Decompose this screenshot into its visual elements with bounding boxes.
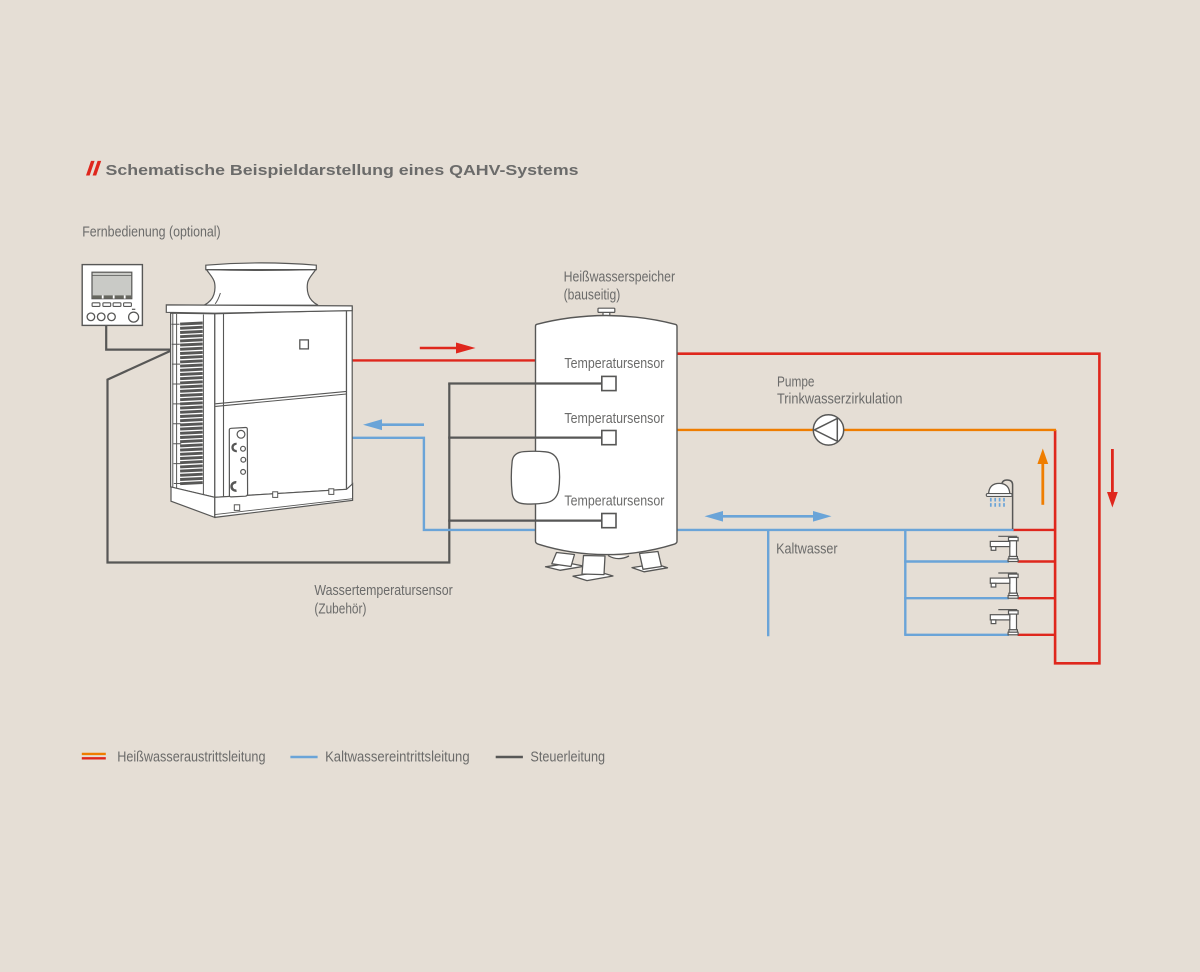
svg-text:Heißwasseraustrittsleitung: Heißwasseraustrittsleitung [117,749,265,766]
svg-text:Pumpe: Pumpe [777,373,815,390]
svg-text:(Zubehör): (Zubehör) [314,601,366,618]
svg-text:Trinkwasserzirkulation: Trinkwasserzirkulation [777,391,903,408]
svg-text:Temperatursensor: Temperatursensor [564,492,664,509]
svg-text:Temperatursensor: Temperatursensor [564,410,664,427]
svg-text:(bauseitig): (bauseitig) [564,287,621,304]
svg-text:Fernbedienung (optional): Fernbedienung (optional) [82,224,221,241]
svg-text:Kaltwassereintrittsleitung: Kaltwassereintrittsleitung [325,749,470,766]
svg-text:Kaltwasser: Kaltwasser [776,541,838,558]
svg-text:Heißwasserspeicher: Heißwasserspeicher [564,268,676,285]
svg-text:Schematische Beispieldarstellu: Schematische Beispieldarstellung eines Q… [106,162,579,179]
svg-text:Temperatursensor: Temperatursensor [564,355,664,372]
svg-text:Steuerleitung: Steuerleitung [530,749,605,766]
svg-text:Wassertemperatursensor: Wassertemperatursensor [314,582,452,599]
